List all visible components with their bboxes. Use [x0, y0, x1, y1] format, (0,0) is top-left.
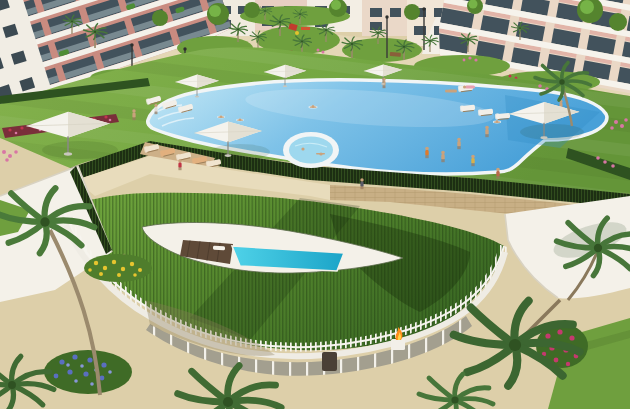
- yellow-flower-bed-base: [84, 254, 152, 282]
- pavilion-doorway: [322, 352, 337, 371]
- parasol-shadow: [42, 141, 118, 159]
- indoor-lounger: [213, 246, 225, 251]
- person-lying: [445, 90, 457, 93]
- child-swimmer-arms: [316, 153, 325, 155]
- kids-pool-water: [289, 137, 333, 164]
- parasol-shadow: [520, 124, 584, 140]
- parasol-shadow: [210, 144, 270, 160]
- scene-canvas: [0, 0, 630, 409]
- kids-pool: [283, 132, 339, 168]
- person-lying: [463, 86, 475, 89]
- blue-flower-bed-base: [44, 350, 132, 394]
- child-swimmer: [301, 147, 304, 150]
- fire-bowl-planter: [391, 339, 405, 350]
- resort-rendering: [0, 0, 630, 409]
